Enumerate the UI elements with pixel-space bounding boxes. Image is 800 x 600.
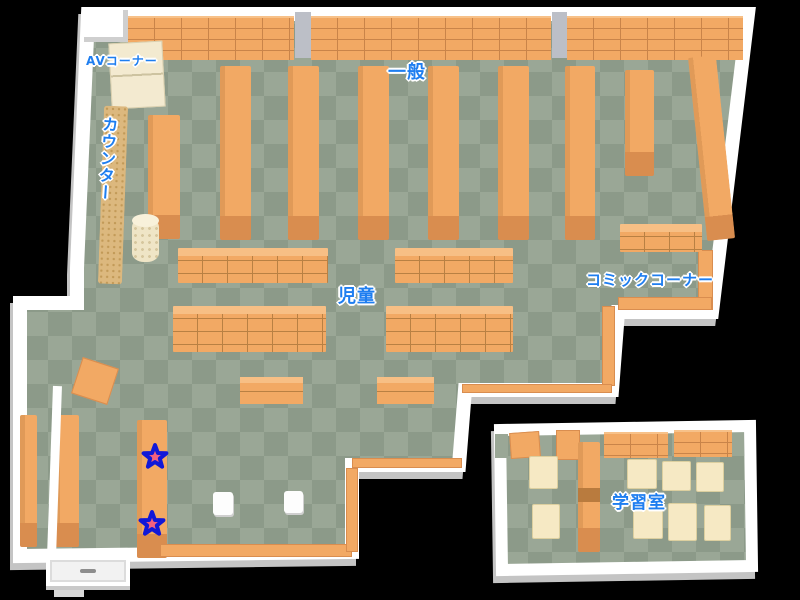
bookshelf — [625, 70, 654, 176]
star-marker[interactable] — [140, 442, 170, 472]
wall-bookshelf — [567, 16, 743, 60]
wall-shelf — [462, 384, 612, 393]
children-shelf — [178, 248, 328, 283]
label-av-corner: AVコーナー — [86, 52, 158, 69]
wall-shelf — [160, 544, 352, 557]
bookshelf — [288, 66, 319, 240]
wall-pillar — [552, 12, 567, 58]
study-desk — [532, 504, 560, 539]
wall-shelf — [352, 458, 462, 468]
entrance-step — [54, 588, 84, 597]
study-shelf — [674, 430, 732, 457]
wall-shelf — [602, 306, 615, 386]
wall-pillar — [295, 12, 311, 58]
study-shelf — [556, 430, 580, 460]
star-marker[interactable] — [137, 509, 167, 539]
bookshelf — [358, 66, 389, 240]
library-floor-map: AVコーナー 一般 カウンター 児童 コミックコーナー 学習室 — [0, 0, 800, 600]
low-bench — [377, 377, 434, 404]
study-desk — [662, 461, 691, 491]
study-shelf — [509, 431, 541, 459]
study-desk — [696, 462, 724, 492]
low-bench — [240, 377, 303, 404]
wall-shelf — [618, 297, 712, 310]
bookshelf — [20, 415, 37, 547]
comic-shelf — [620, 224, 702, 252]
bookshelf — [498, 66, 529, 240]
bookshelf — [428, 66, 459, 240]
children-shelf — [386, 306, 513, 352]
label-general: 一般 — [388, 58, 426, 84]
bookshelf — [220, 66, 251, 240]
wall-shelf — [346, 468, 358, 552]
star-icon — [140, 442, 170, 472]
bookshelf — [565, 66, 595, 240]
study-desk — [668, 503, 697, 541]
study-desk — [529, 456, 558, 489]
study-room-doorway — [495, 434, 508, 458]
children-shelf — [173, 306, 326, 352]
umbrella-stand — [132, 218, 159, 262]
star-icon — [137, 509, 167, 539]
entrance-door[interactable] — [46, 556, 130, 586]
wall-bookshelf — [311, 16, 551, 60]
study-desk — [704, 505, 731, 541]
label-study-room: 学習室 — [612, 488, 666, 513]
study-desk — [627, 459, 657, 489]
book-cart — [284, 491, 303, 513]
divider-gap — [578, 488, 600, 502]
label-children: 児童 — [338, 282, 376, 308]
av-corner-cabinet — [108, 41, 165, 110]
label-comic-corner: コミックコーナー — [586, 269, 714, 290]
corner-room — [84, 10, 128, 42]
study-shelf — [604, 432, 668, 458]
book-cart — [213, 492, 233, 515]
children-shelf — [395, 248, 513, 283]
